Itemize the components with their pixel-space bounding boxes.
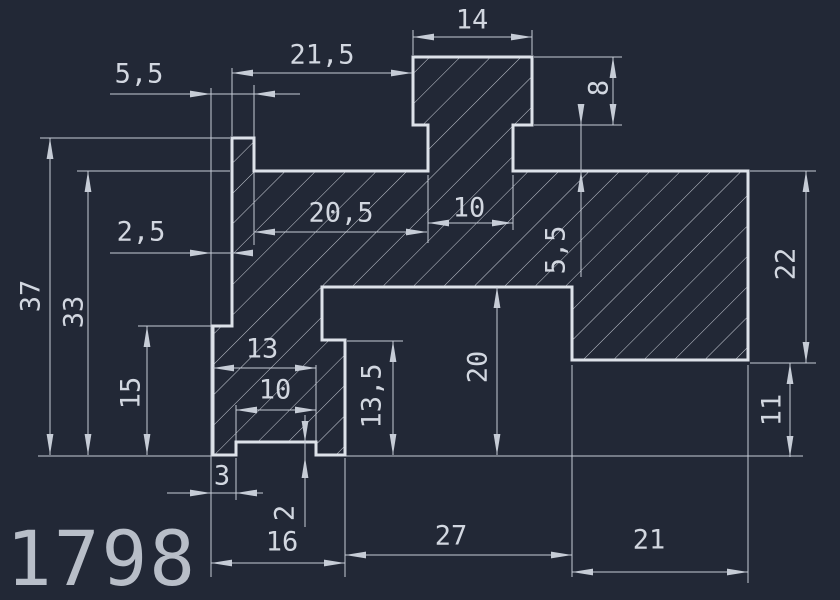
- dimension-value: 15: [116, 377, 147, 410]
- dimension-value: 33: [59, 296, 90, 329]
- dimension-value: 10: [453, 193, 486, 224]
- dimension-value: 27: [435, 521, 468, 552]
- dimension-value: 13: [246, 334, 279, 365]
- dimension-value: 3: [214, 461, 230, 492]
- dimension-value: 13,5: [357, 363, 388, 428]
- drawing-number-label: 1798: [6, 514, 197, 600]
- dimension-value: 10: [259, 375, 292, 406]
- dimension-value: 2,5: [117, 217, 166, 248]
- dimension-value: 22: [771, 248, 802, 281]
- dimension-value: 20: [463, 351, 494, 384]
- dimension-value: 2: [270, 505, 301, 521]
- dimension-value: 21: [633, 525, 666, 556]
- dimension-value: 20,5: [308, 198, 373, 229]
- dimension-value: 11: [757, 394, 788, 427]
- dimension-value: 21,5: [289, 40, 354, 71]
- dimension-value: 5,5: [115, 59, 164, 90]
- drawing-canvas: 1421,55,52,520,51085,522373315131013,520…: [0, 0, 840, 600]
- dimension-value: 37: [16, 280, 47, 313]
- dimension-value: 16: [266, 527, 299, 558]
- dimension-value: 8: [584, 80, 615, 96]
- dimension-value: 14: [456, 5, 489, 36]
- dimension-value: 5,5: [541, 226, 572, 275]
- cad-viewport[interactable]: 1421,55,52,520,51085,522373315131013,520…: [0, 0, 840, 600]
